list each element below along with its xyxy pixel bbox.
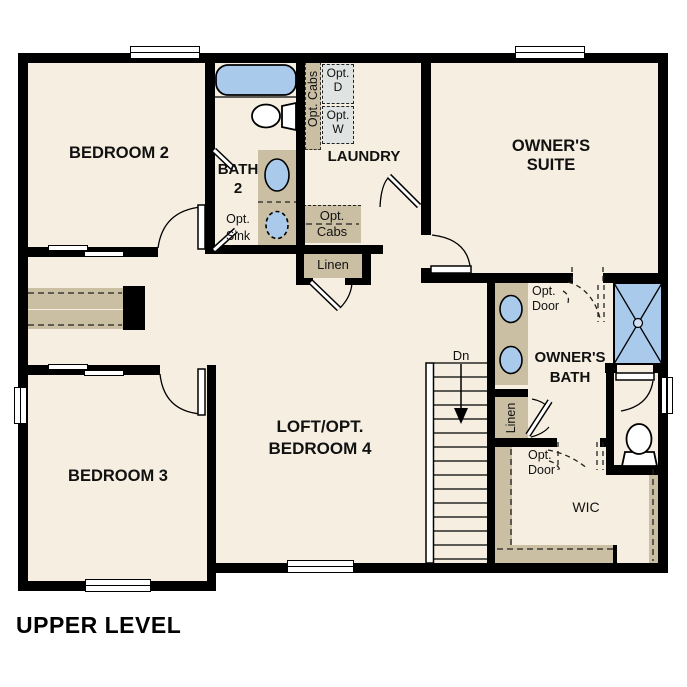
window (130, 46, 200, 59)
room-label-wic: WIC (572, 500, 599, 515)
wall (18, 53, 28, 590)
wall (123, 286, 145, 330)
wall (487, 273, 495, 563)
wall (207, 563, 668, 573)
wall (606, 465, 668, 475)
room-label-bedroom3: BEDROOM 3 (68, 466, 168, 486)
room-label-bath2: BATH2 (218, 160, 259, 198)
window (661, 377, 673, 414)
sliding-closet-door (48, 245, 88, 251)
wall (296, 53, 305, 254)
label-opt-cabs-vertical: Opt. Cabs (305, 54, 321, 144)
label-opt-door-bath: Opt.Door (532, 284, 559, 314)
window (287, 560, 354, 573)
wall (296, 278, 313, 285)
owners-bath-vanity (494, 283, 528, 385)
wic-shelf-left (495, 447, 512, 545)
room-label-owners-suite: OWNER'SSUITE (512, 137, 590, 175)
wall (658, 53, 668, 573)
wall (653, 363, 668, 373)
label-opt-dryer: Opt.D (327, 66, 350, 94)
wall (205, 245, 383, 254)
wall (606, 373, 614, 475)
label-opt-washer: Opt.W (327, 108, 350, 136)
plan-title: UPPER LEVEL (16, 612, 181, 639)
wall (345, 278, 371, 285)
bath2-vanity (258, 150, 296, 245)
label-linen-hall: Linen (317, 257, 349, 272)
closet-shelf-bedroom2 (28, 288, 123, 309)
wall (487, 438, 557, 447)
floor-plan: BEDROOM 2 BEDROOM 3 OWNER'SSUITE LAUNDRY… (0, 0, 687, 687)
window (85, 579, 151, 592)
wall (421, 53, 431, 235)
room-label-loft: LOFT/OPT.BEDROOM 4 (269, 416, 372, 460)
label-opt-door-wic: Opt.Door (528, 448, 555, 478)
sliding-closet-door (48, 364, 88, 370)
label-opt-cabs-box: Opt.Cabs (317, 208, 347, 240)
wall (600, 438, 608, 447)
wall (605, 363, 617, 373)
wall (205, 53, 215, 254)
room-label-owners-bath: OWNER'SBATH (534, 348, 605, 388)
wall (207, 365, 216, 591)
closet-shelf-bedroom3 (28, 310, 123, 329)
sliding-closet-door (84, 370, 124, 376)
wall (603, 273, 668, 283)
label-stairs-down: Dn (453, 348, 470, 363)
wall (613, 545, 617, 563)
room-label-laundry: LAUNDRY (328, 147, 401, 167)
wic-shelf-bottom (495, 545, 616, 563)
window (515, 46, 585, 59)
label-opt-sink: Opt.Sink (226, 211, 250, 245)
window (14, 387, 27, 424)
sliding-closet-door (84, 251, 124, 257)
wall (421, 273, 573, 283)
label-linen-bath: Linen (501, 388, 521, 448)
room-label-bedroom2: BEDROOM 2 (69, 143, 169, 163)
